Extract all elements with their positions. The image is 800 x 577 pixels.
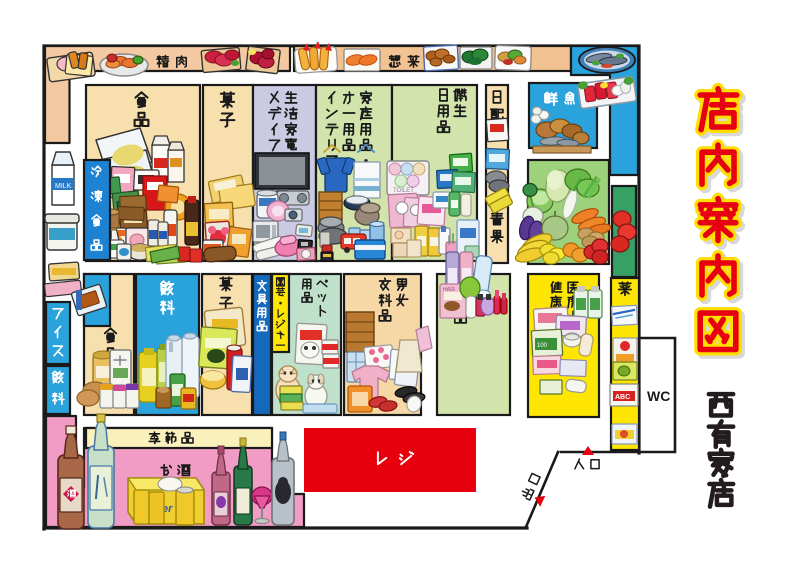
svg-text:100: 100 xyxy=(537,343,548,349)
svg-text:ABC: ABC xyxy=(615,394,630,401)
svg-text:MILK: MILK xyxy=(55,183,72,190)
svg-text:HAIR: HAIR xyxy=(443,287,455,293)
svg-text:WC: WC xyxy=(647,388,670,404)
